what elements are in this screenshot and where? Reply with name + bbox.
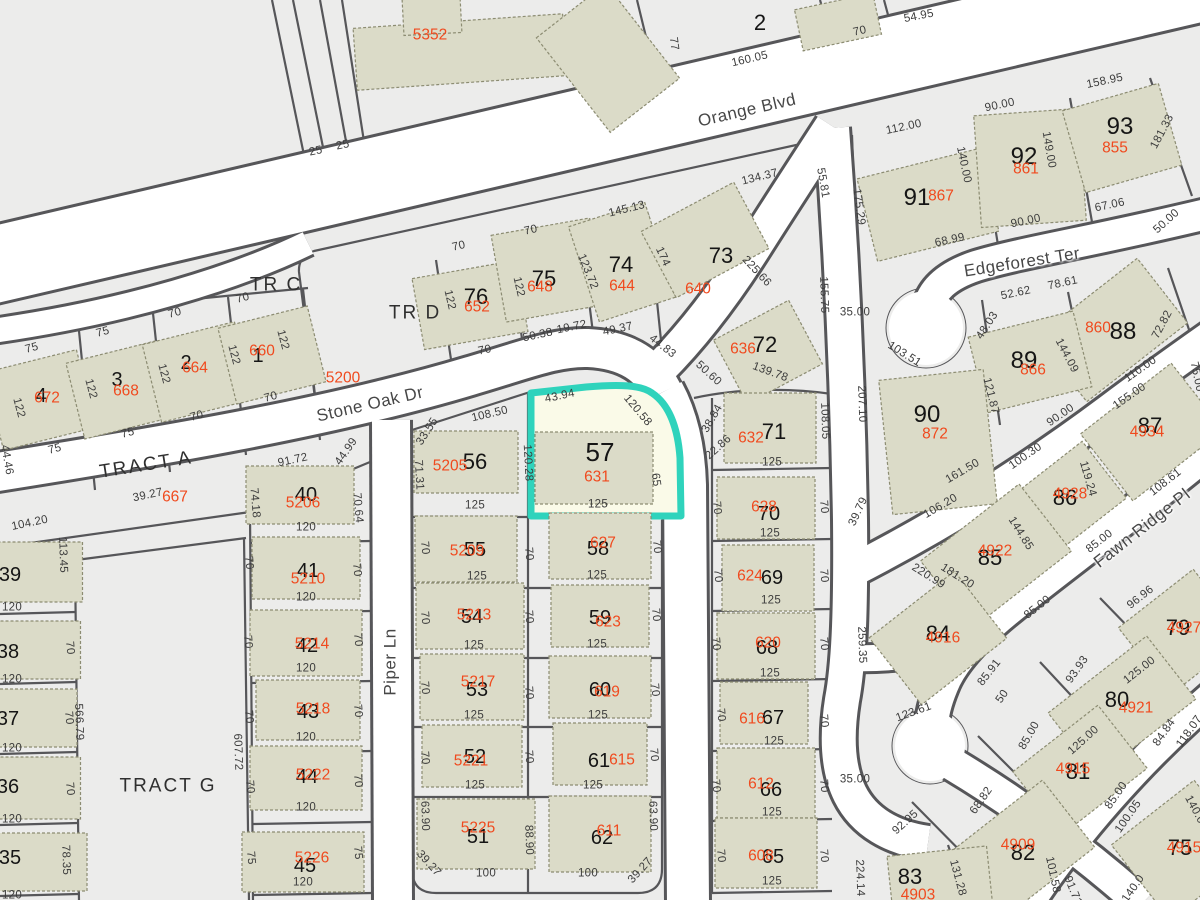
dimension-label: 125 xyxy=(465,500,485,512)
address-label: 5225 xyxy=(461,820,495,836)
dimension-label: 607.72 xyxy=(231,733,244,770)
dimension-label: 125 xyxy=(588,499,608,511)
address-label: 866 xyxy=(1020,362,1046,378)
dimension-label: 70 xyxy=(817,714,830,728)
dimension-label: 70 xyxy=(522,686,535,700)
dimension-label: 70 xyxy=(522,750,535,764)
lot-number: 74 xyxy=(609,254,633,276)
tract-label: TRACT G xyxy=(119,777,216,796)
dimension-label: 70 xyxy=(711,569,724,583)
address-label: 5222 xyxy=(296,767,330,783)
dimension-label: 125 xyxy=(467,571,487,583)
dimension-label: 71.31 xyxy=(411,460,424,491)
address-label: 660 xyxy=(249,343,275,359)
address-label: 5206 xyxy=(286,495,320,511)
address-label: 668 xyxy=(113,383,139,399)
dimension-label: 70 xyxy=(709,779,722,793)
lot-number: 91 xyxy=(904,186,931,210)
lot-number: 35 xyxy=(0,848,21,868)
dimension-label: 120 xyxy=(293,877,313,889)
dimension-label: 70 xyxy=(648,683,661,697)
lot-number: 83 xyxy=(898,866,922,888)
address-label: 5214 xyxy=(295,636,329,652)
address-label: 5210 xyxy=(291,571,325,587)
dimension-label: 70 xyxy=(817,569,830,583)
tract-label: TR C xyxy=(250,276,302,295)
address-label: 612 xyxy=(748,776,774,792)
lot-number: 2 xyxy=(754,12,766,34)
dimension-label: 125 xyxy=(583,780,603,792)
dimension-label: 88.90 xyxy=(522,825,535,856)
dimension-label: 125 xyxy=(587,639,607,651)
dimension-label: 100 xyxy=(476,868,496,880)
dimension-label: 75 xyxy=(244,851,257,865)
address-label: 4934 xyxy=(1130,424,1164,440)
dimension-label: 155.75 xyxy=(817,276,830,313)
dimension-label: 125 xyxy=(465,780,485,792)
address-label: 664 xyxy=(182,360,208,376)
address-label: 623 xyxy=(595,614,621,630)
address-label: 860 xyxy=(1085,320,1111,336)
dimension-label: 70 xyxy=(418,541,431,555)
address-label: 628 xyxy=(751,499,777,515)
address-label: 611 xyxy=(597,823,622,839)
address-label: 5213 xyxy=(457,607,491,623)
address-label: 861 xyxy=(1013,161,1039,177)
dimension-label: 125 xyxy=(760,528,780,540)
dimension-label: 120 xyxy=(296,522,316,534)
address-label: 616 xyxy=(739,711,765,727)
dimension-label: 70 xyxy=(242,556,255,570)
dimension-label: 120 xyxy=(2,674,22,686)
dimension-label: 70 xyxy=(714,849,727,863)
lot-number: 57 xyxy=(586,439,615,465)
dimension-label: 120 xyxy=(2,890,22,900)
address-label: 627 xyxy=(590,535,616,551)
lot-number: 69 xyxy=(761,568,783,588)
dimension-label: 120 xyxy=(2,743,22,755)
dimension-label: 70 xyxy=(714,708,727,722)
street-name: Piper Ln xyxy=(382,628,399,695)
dimension-label: 108.05 xyxy=(818,402,831,439)
address-label: 5352 xyxy=(413,27,447,43)
dimension-label: 70 xyxy=(522,610,535,624)
address-label: 631 xyxy=(584,469,610,485)
dimension-label: 63.90 xyxy=(646,801,659,832)
lot-number: 36 xyxy=(0,777,19,797)
parcel-map: 252577160.057054.95145.13134.3755.817070… xyxy=(0,0,1200,900)
lot-number: 39 xyxy=(0,565,21,585)
dimension-label: 120 xyxy=(296,732,316,744)
lot-number: 73 xyxy=(709,245,733,267)
address-label: 867 xyxy=(928,188,954,204)
address-label: 5226 xyxy=(295,850,329,866)
dimension-label: 125 xyxy=(760,668,780,680)
address-label: 4909 xyxy=(1001,837,1035,853)
address-label: 4922 xyxy=(978,543,1012,559)
dimension-label: 75 xyxy=(351,846,364,860)
dimension-label: 120 xyxy=(2,814,22,826)
address-label: 667 xyxy=(162,489,188,505)
address-label: 4921 xyxy=(1119,700,1153,716)
dimension-label: 125 xyxy=(762,876,782,888)
dimension-label: 70 xyxy=(243,780,256,794)
lot-number: 37 xyxy=(0,709,19,729)
dimension-label: 35.00 xyxy=(840,774,870,786)
dimension-label: 224.14 xyxy=(853,859,866,896)
dimension-label: 120 xyxy=(2,602,22,614)
dimension-label: 70 xyxy=(647,748,660,762)
dimension-label: 125 xyxy=(762,807,782,819)
address-label: 4903 xyxy=(901,887,935,900)
dimension-label: 70 xyxy=(242,710,255,724)
lot-number: 88 xyxy=(1110,320,1137,344)
dimension-label: 70 xyxy=(351,633,364,647)
address-label: 4916 xyxy=(926,630,960,646)
address-label: 615 xyxy=(609,752,635,768)
dimension-label: 63.90 xyxy=(418,801,431,832)
dimension-label: 259.35 xyxy=(855,626,868,663)
address-label: 5218 xyxy=(296,701,330,717)
dimension-label: 70 xyxy=(817,779,830,793)
dimension-label: 70 xyxy=(817,500,830,514)
dimension-label: 70 xyxy=(650,540,663,554)
dimension-label: 100 xyxy=(578,868,598,880)
lot-number: 72 xyxy=(753,334,777,356)
lot-number: 67 xyxy=(762,708,784,728)
address-label: 632 xyxy=(738,430,764,446)
dimension-label: 125 xyxy=(464,710,484,722)
dimension-label: 70 xyxy=(817,637,830,651)
dimension-label: 70 xyxy=(350,563,363,577)
dimension-label: 77 xyxy=(666,37,679,52)
address-label: 872 xyxy=(922,426,948,442)
dimension-label: 125 xyxy=(764,736,784,748)
lot-number: 38 xyxy=(0,642,19,662)
dimension-label: 70 xyxy=(522,547,535,561)
dimension-label: 120 xyxy=(296,592,316,604)
address-label: 652 xyxy=(464,299,490,315)
dimension-label: 120 xyxy=(296,802,316,814)
dimension-label: 207.10 xyxy=(855,385,868,422)
address-label: 672 xyxy=(34,390,60,406)
dimension-label: 74.18 xyxy=(247,487,261,518)
dimension-label: 70 xyxy=(418,681,431,695)
dimension-label: 120 xyxy=(296,663,316,675)
address-label: 648 xyxy=(527,279,553,295)
address-label: 4915 xyxy=(1056,761,1090,777)
lot-number: 61 xyxy=(588,751,610,771)
dimension-label: 65 xyxy=(648,473,661,488)
lot-number: 90 xyxy=(914,403,941,427)
address-label: 624 xyxy=(737,568,763,584)
address-label: 620 xyxy=(755,635,781,651)
dimension-label: 35.00 xyxy=(840,307,870,319)
address-label: 640 xyxy=(685,281,711,297)
dimension-label: 70 xyxy=(241,635,254,649)
address-label: 5205 xyxy=(433,458,467,474)
dimension-label: 125 xyxy=(762,457,782,469)
dimension-label: 70 xyxy=(418,751,431,765)
lot-number: 71 xyxy=(762,421,786,443)
dimension-label: 125 xyxy=(588,710,608,722)
address-label: 608 xyxy=(748,848,774,864)
dimension-label: 125 xyxy=(761,595,781,607)
dimension-label: 125 xyxy=(464,640,484,652)
address-label: 5217 xyxy=(461,674,495,690)
dimension-label: 70 xyxy=(817,849,830,863)
dimension-label: 70.64 xyxy=(350,492,364,523)
dimension-label: 125 xyxy=(587,570,607,582)
address-label: 5209 xyxy=(450,543,484,559)
address-label: 619 xyxy=(594,684,620,700)
address-label: 4928 xyxy=(1053,486,1087,502)
address-label: 5221 xyxy=(454,753,488,769)
dimension-label: 113.45 xyxy=(56,537,69,574)
dimension-label: 78.35 xyxy=(59,845,72,876)
dimension-label: 566.79 xyxy=(72,703,85,740)
address-label: 644 xyxy=(609,278,635,294)
dimension-label: 70 xyxy=(351,704,364,718)
dimension-label: 70 xyxy=(649,608,662,622)
address-label: 4915 xyxy=(1167,840,1200,856)
lot-number: 93 xyxy=(1107,115,1134,139)
address-label: 5200 xyxy=(326,370,360,386)
dimension-label: 70 xyxy=(351,774,364,788)
address-label: 4927 xyxy=(1167,620,1200,636)
dimension-label: 120.28 xyxy=(520,444,533,482)
dimension-label: 70 xyxy=(710,501,723,515)
dimension-label: 70 xyxy=(418,611,431,625)
address-label: 636 xyxy=(730,341,756,357)
address-label: 855 xyxy=(1102,140,1128,156)
tract-label: TR D xyxy=(389,304,441,323)
dimension-label: 70 xyxy=(63,782,76,796)
dimension-label: 70 xyxy=(709,637,722,651)
dimension-label: 70 xyxy=(63,641,76,655)
